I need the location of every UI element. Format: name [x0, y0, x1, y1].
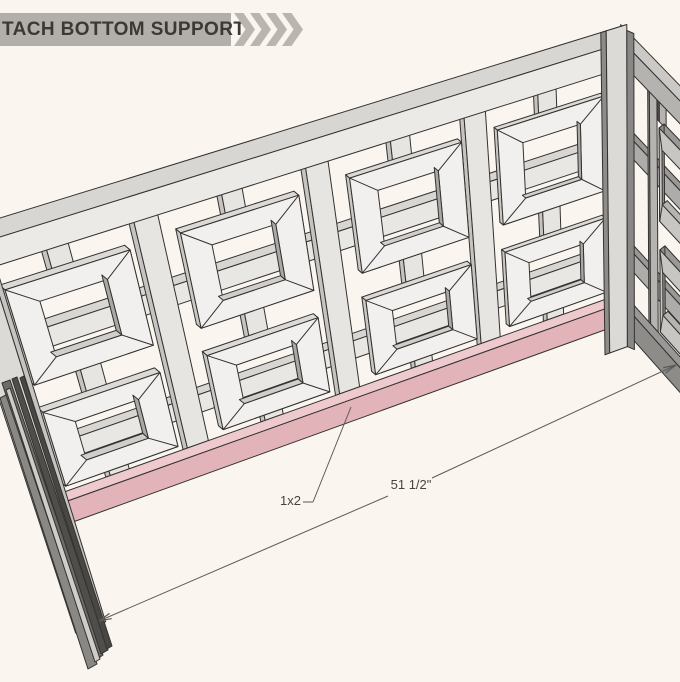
step-title: TACH BOTTOM SUPPORT	[0, 19, 245, 41]
part-label: 1x2	[280, 493, 301, 508]
chevron-arrows-icon	[234, 13, 298, 46]
chevron-icon	[234, 13, 255, 46]
diagram-stage: TACH BOTTOM SUPPORT 1x2 51 1/2"	[0, 0, 680, 682]
dimension-label: 51 1/2"	[391, 477, 432, 492]
assembly-drawing	[0, 0, 680, 682]
step-banner: TACH BOTTOM SUPPORT	[0, 13, 231, 46]
